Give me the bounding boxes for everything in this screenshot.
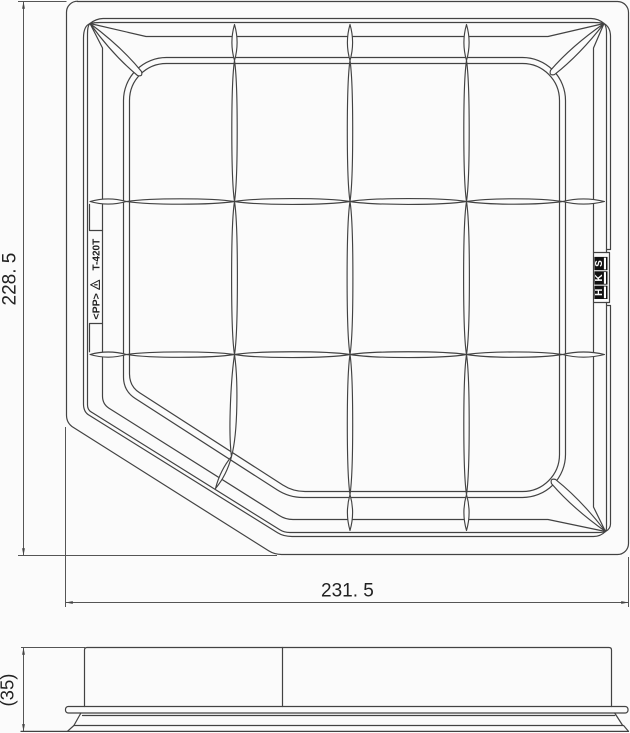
svg-text:228. 5: 228. 5: [0, 253, 21, 306]
svg-text:K: K: [594, 274, 605, 282]
svg-text:H: H: [594, 289, 605, 296]
svg-text:231. 5: 231. 5: [321, 581, 374, 602]
svg-text:(35): (35): [0, 674, 18, 707]
svg-text:T-420T: T-420T: [92, 239, 103, 271]
svg-text:<PP>: <PP>: [91, 293, 103, 319]
svg-text:S: S: [594, 260, 605, 267]
